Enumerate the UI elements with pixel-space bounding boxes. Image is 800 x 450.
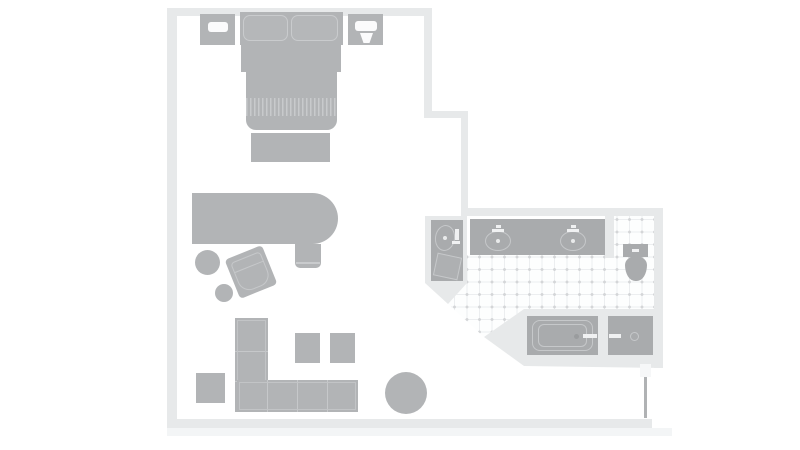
wall-bedroom-right-lower <box>461 111 468 216</box>
bed-upper <box>241 45 341 72</box>
desk <box>192 193 338 244</box>
wall-bedroom-right-upper <box>424 8 432 118</box>
sink-right-drain <box>571 239 575 243</box>
faucet-right-icon <box>567 229 579 232</box>
bathtub-drain <box>574 334 579 339</box>
faucet-left-icon <box>492 229 504 232</box>
wall-bathroom-top <box>461 208 663 216</box>
bathtub-faucet-icon <box>583 334 597 338</box>
desk-chair <box>295 244 321 268</box>
shower-faucet-icon <box>609 334 621 338</box>
entry-door-leaf <box>644 377 647 418</box>
nightstand-left-lamp-icon <box>208 22 228 32</box>
round-table <box>385 372 427 414</box>
pillow-left <box>243 15 288 41</box>
nook-hamper <box>433 253 462 281</box>
nightstand-right-lamp-icon <box>355 21 377 31</box>
wall-left <box>167 8 177 428</box>
nook-sink-drain <box>443 236 447 240</box>
sink-left-drain <box>496 239 500 243</box>
bed-blanket-stripes <box>246 98 337 116</box>
faucet-left-spout-icon <box>496 225 501 228</box>
sofa-base <box>237 380 358 412</box>
nook-faucet-icon <box>455 229 459 240</box>
pillow-right <box>291 15 338 41</box>
ottoman-left <box>295 333 320 363</box>
wall-bottom-shadow <box>167 428 672 436</box>
stool <box>195 250 220 275</box>
side-table <box>196 373 225 403</box>
floor-cushion <box>215 284 233 302</box>
wall-bottom <box>167 419 652 428</box>
toilet-flush-button <box>632 249 639 252</box>
bathtub-basin <box>538 324 587 347</box>
ottoman-right <box>330 333 355 363</box>
entry-door-hinge <box>640 364 651 377</box>
faucet-right-spout-icon <box>571 225 576 228</box>
nook-faucet-handle-icon <box>452 241 460 244</box>
bed-bench <box>251 133 330 162</box>
desk-chair-seam <box>296 262 320 264</box>
shower-drain <box>630 332 639 341</box>
floor-plan-canvas <box>0 0 800 450</box>
wall-toilet-divider <box>605 216 614 258</box>
